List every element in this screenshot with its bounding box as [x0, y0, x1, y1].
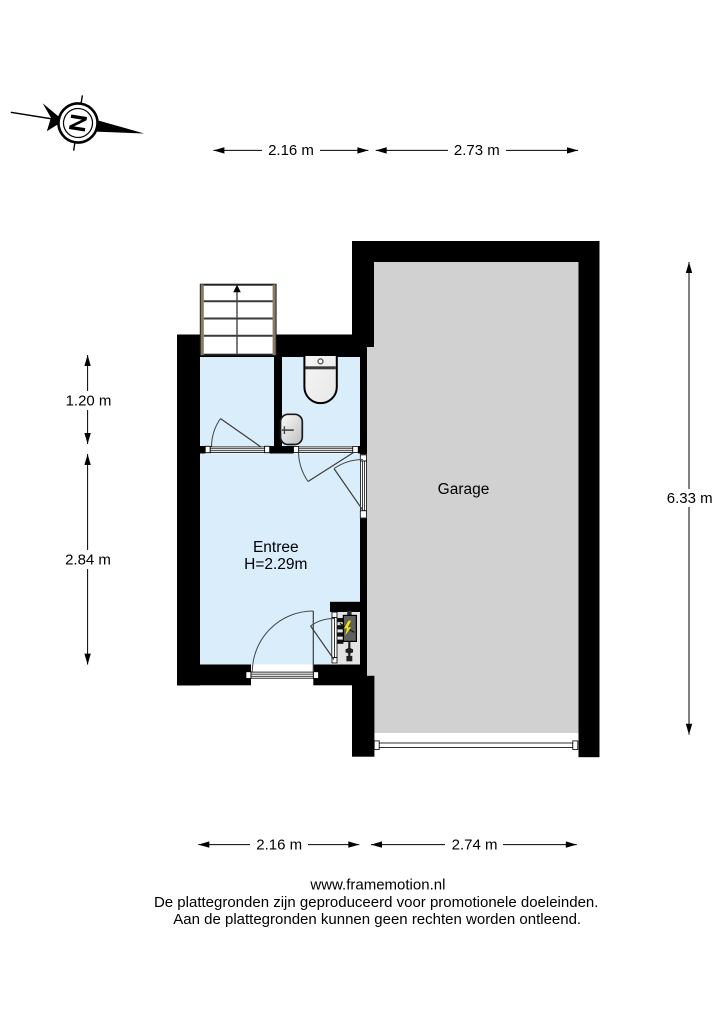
- svg-text:2.16 m: 2.16 m: [256, 836, 302, 853]
- svg-text:Entree: Entree: [253, 539, 299, 556]
- svg-text:2.73 m: 2.73 m: [454, 142, 500, 159]
- svg-text:H=2.29m: H=2.29m: [244, 556, 307, 573]
- svg-text:2.16 m: 2.16 m: [268, 142, 314, 159]
- svg-text:Garage: Garage: [438, 481, 490, 498]
- svg-text:2.74 m: 2.74 m: [452, 836, 498, 853]
- svg-text:Aan de plattegronden kunnen ge: Aan de plattegronden kunnen geen rechten…: [173, 911, 581, 928]
- svg-text:www.framemotion.nl: www.framemotion.nl: [309, 877, 445, 894]
- svg-text:6.33 m: 6.33 m: [667, 490, 713, 507]
- svg-text:2.84 m: 2.84 m: [65, 551, 111, 568]
- svg-text:1.20 m: 1.20 m: [66, 392, 112, 409]
- svg-text:De plattegronden zijn geproduc: De plattegronden zijn geproduceerd voor …: [154, 894, 598, 911]
